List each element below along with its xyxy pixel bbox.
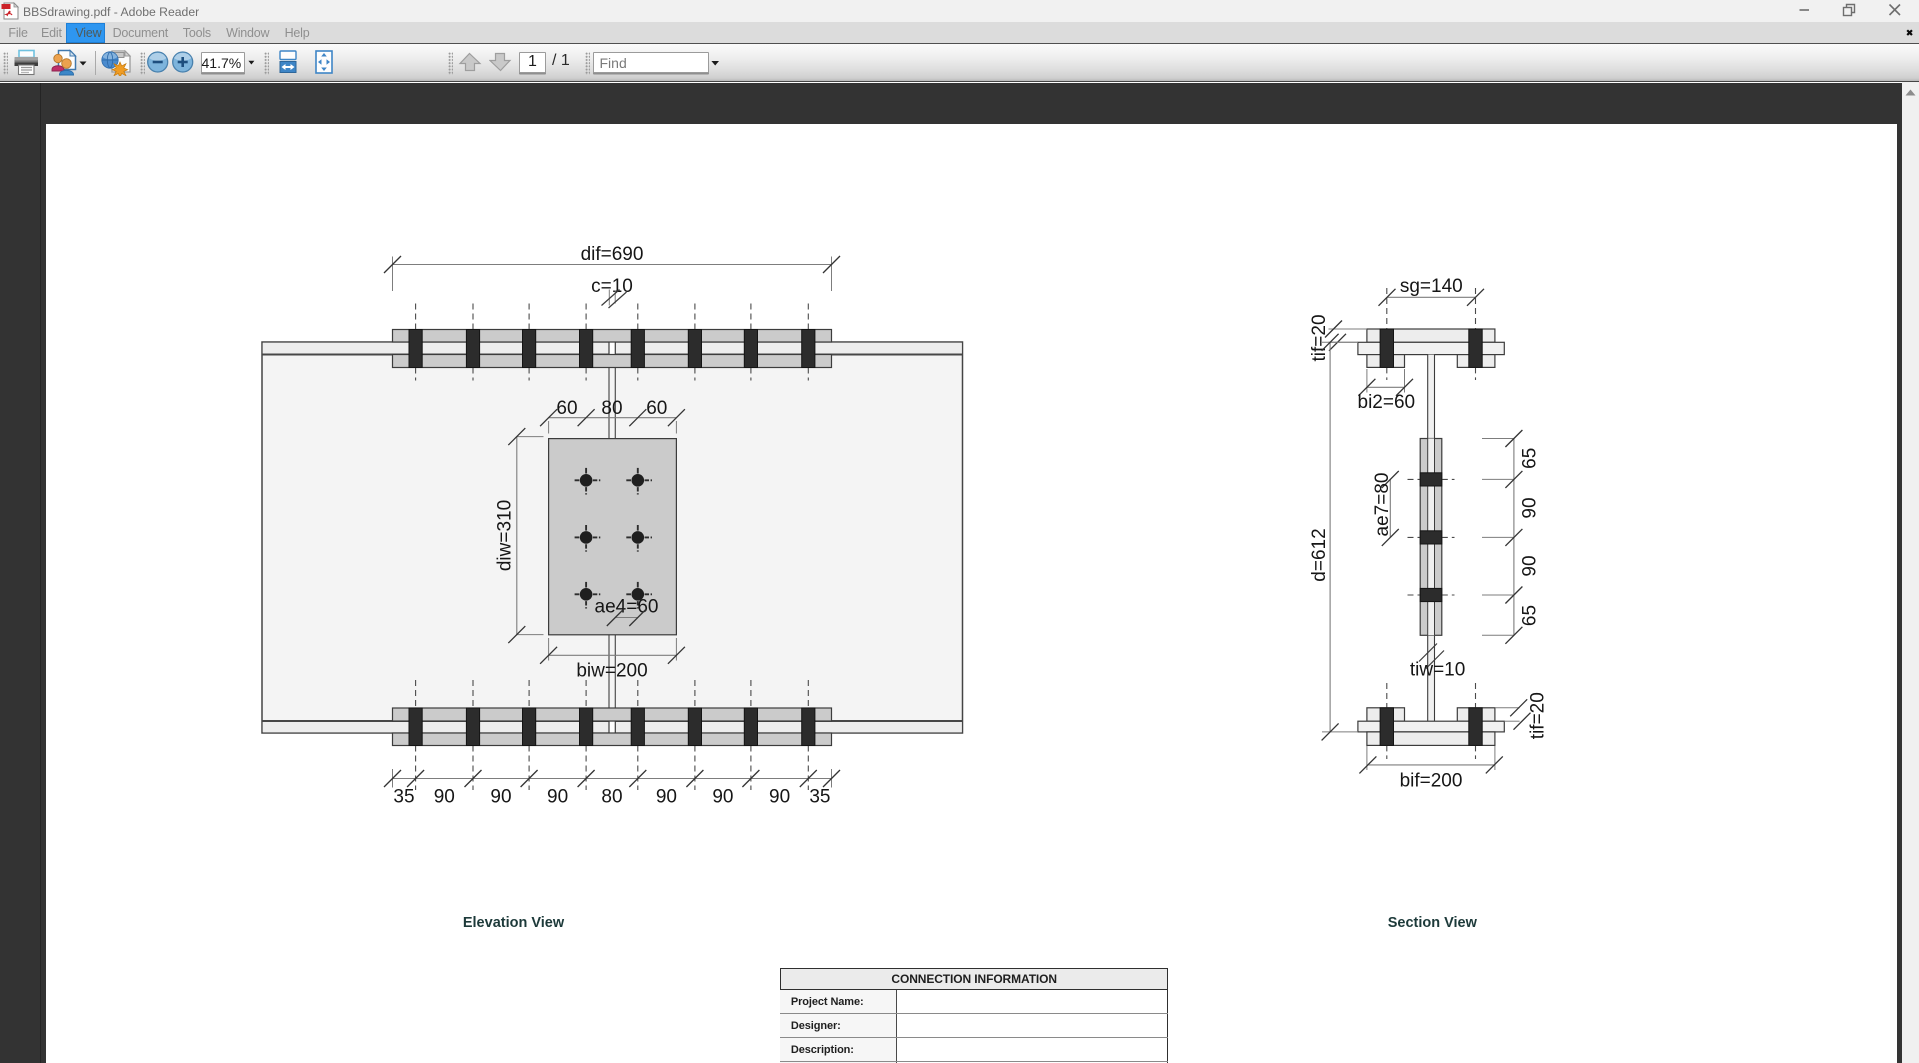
- svg-text:65: 65: [1519, 448, 1540, 469]
- svg-text:90: 90: [769, 787, 790, 808]
- svg-text:diw=310: diw=310: [495, 500, 516, 571]
- svg-text:biw=200: biw=200: [576, 661, 647, 682]
- svg-text:c=10: c=10: [591, 276, 633, 297]
- svg-text:bif=200: bif=200: [1400, 771, 1463, 792]
- svg-text:90: 90: [656, 787, 677, 808]
- svg-text:ae7=80: ae7=80: [1372, 473, 1393, 537]
- svg-text:35: 35: [393, 787, 414, 808]
- svg-text:90: 90: [547, 787, 568, 808]
- svg-text:Section View: Section View: [1388, 915, 1478, 931]
- svg-text:Elevation View: Elevation View: [463, 915, 565, 931]
- svg-text:tiw=10: tiw=10: [1410, 660, 1465, 681]
- svg-text:60: 60: [646, 398, 667, 419]
- svg-text:d=612: d=612: [1309, 528, 1330, 581]
- svg-text:80: 80: [601, 787, 622, 808]
- svg-text:tif=20: tif=20: [1528, 692, 1549, 739]
- svg-text:tif=20: tif=20: [1309, 314, 1330, 361]
- svg-text:90: 90: [712, 787, 733, 808]
- svg-text:90: 90: [490, 787, 511, 808]
- svg-text:bi2=60: bi2=60: [1358, 392, 1416, 413]
- svg-text:90: 90: [1519, 497, 1540, 518]
- svg-text:80: 80: [601, 398, 622, 419]
- svg-text:90: 90: [1519, 555, 1540, 576]
- svg-text:65: 65: [1519, 605, 1540, 626]
- svg-text:dif=690: dif=690: [581, 244, 644, 265]
- svg-text:60: 60: [556, 398, 577, 419]
- svg-text:35: 35: [809, 787, 830, 808]
- svg-text:sg=140: sg=140: [1400, 276, 1463, 297]
- svg-text:ae4=60: ae4=60: [595, 597, 659, 618]
- svg-text:90: 90: [434, 787, 455, 808]
